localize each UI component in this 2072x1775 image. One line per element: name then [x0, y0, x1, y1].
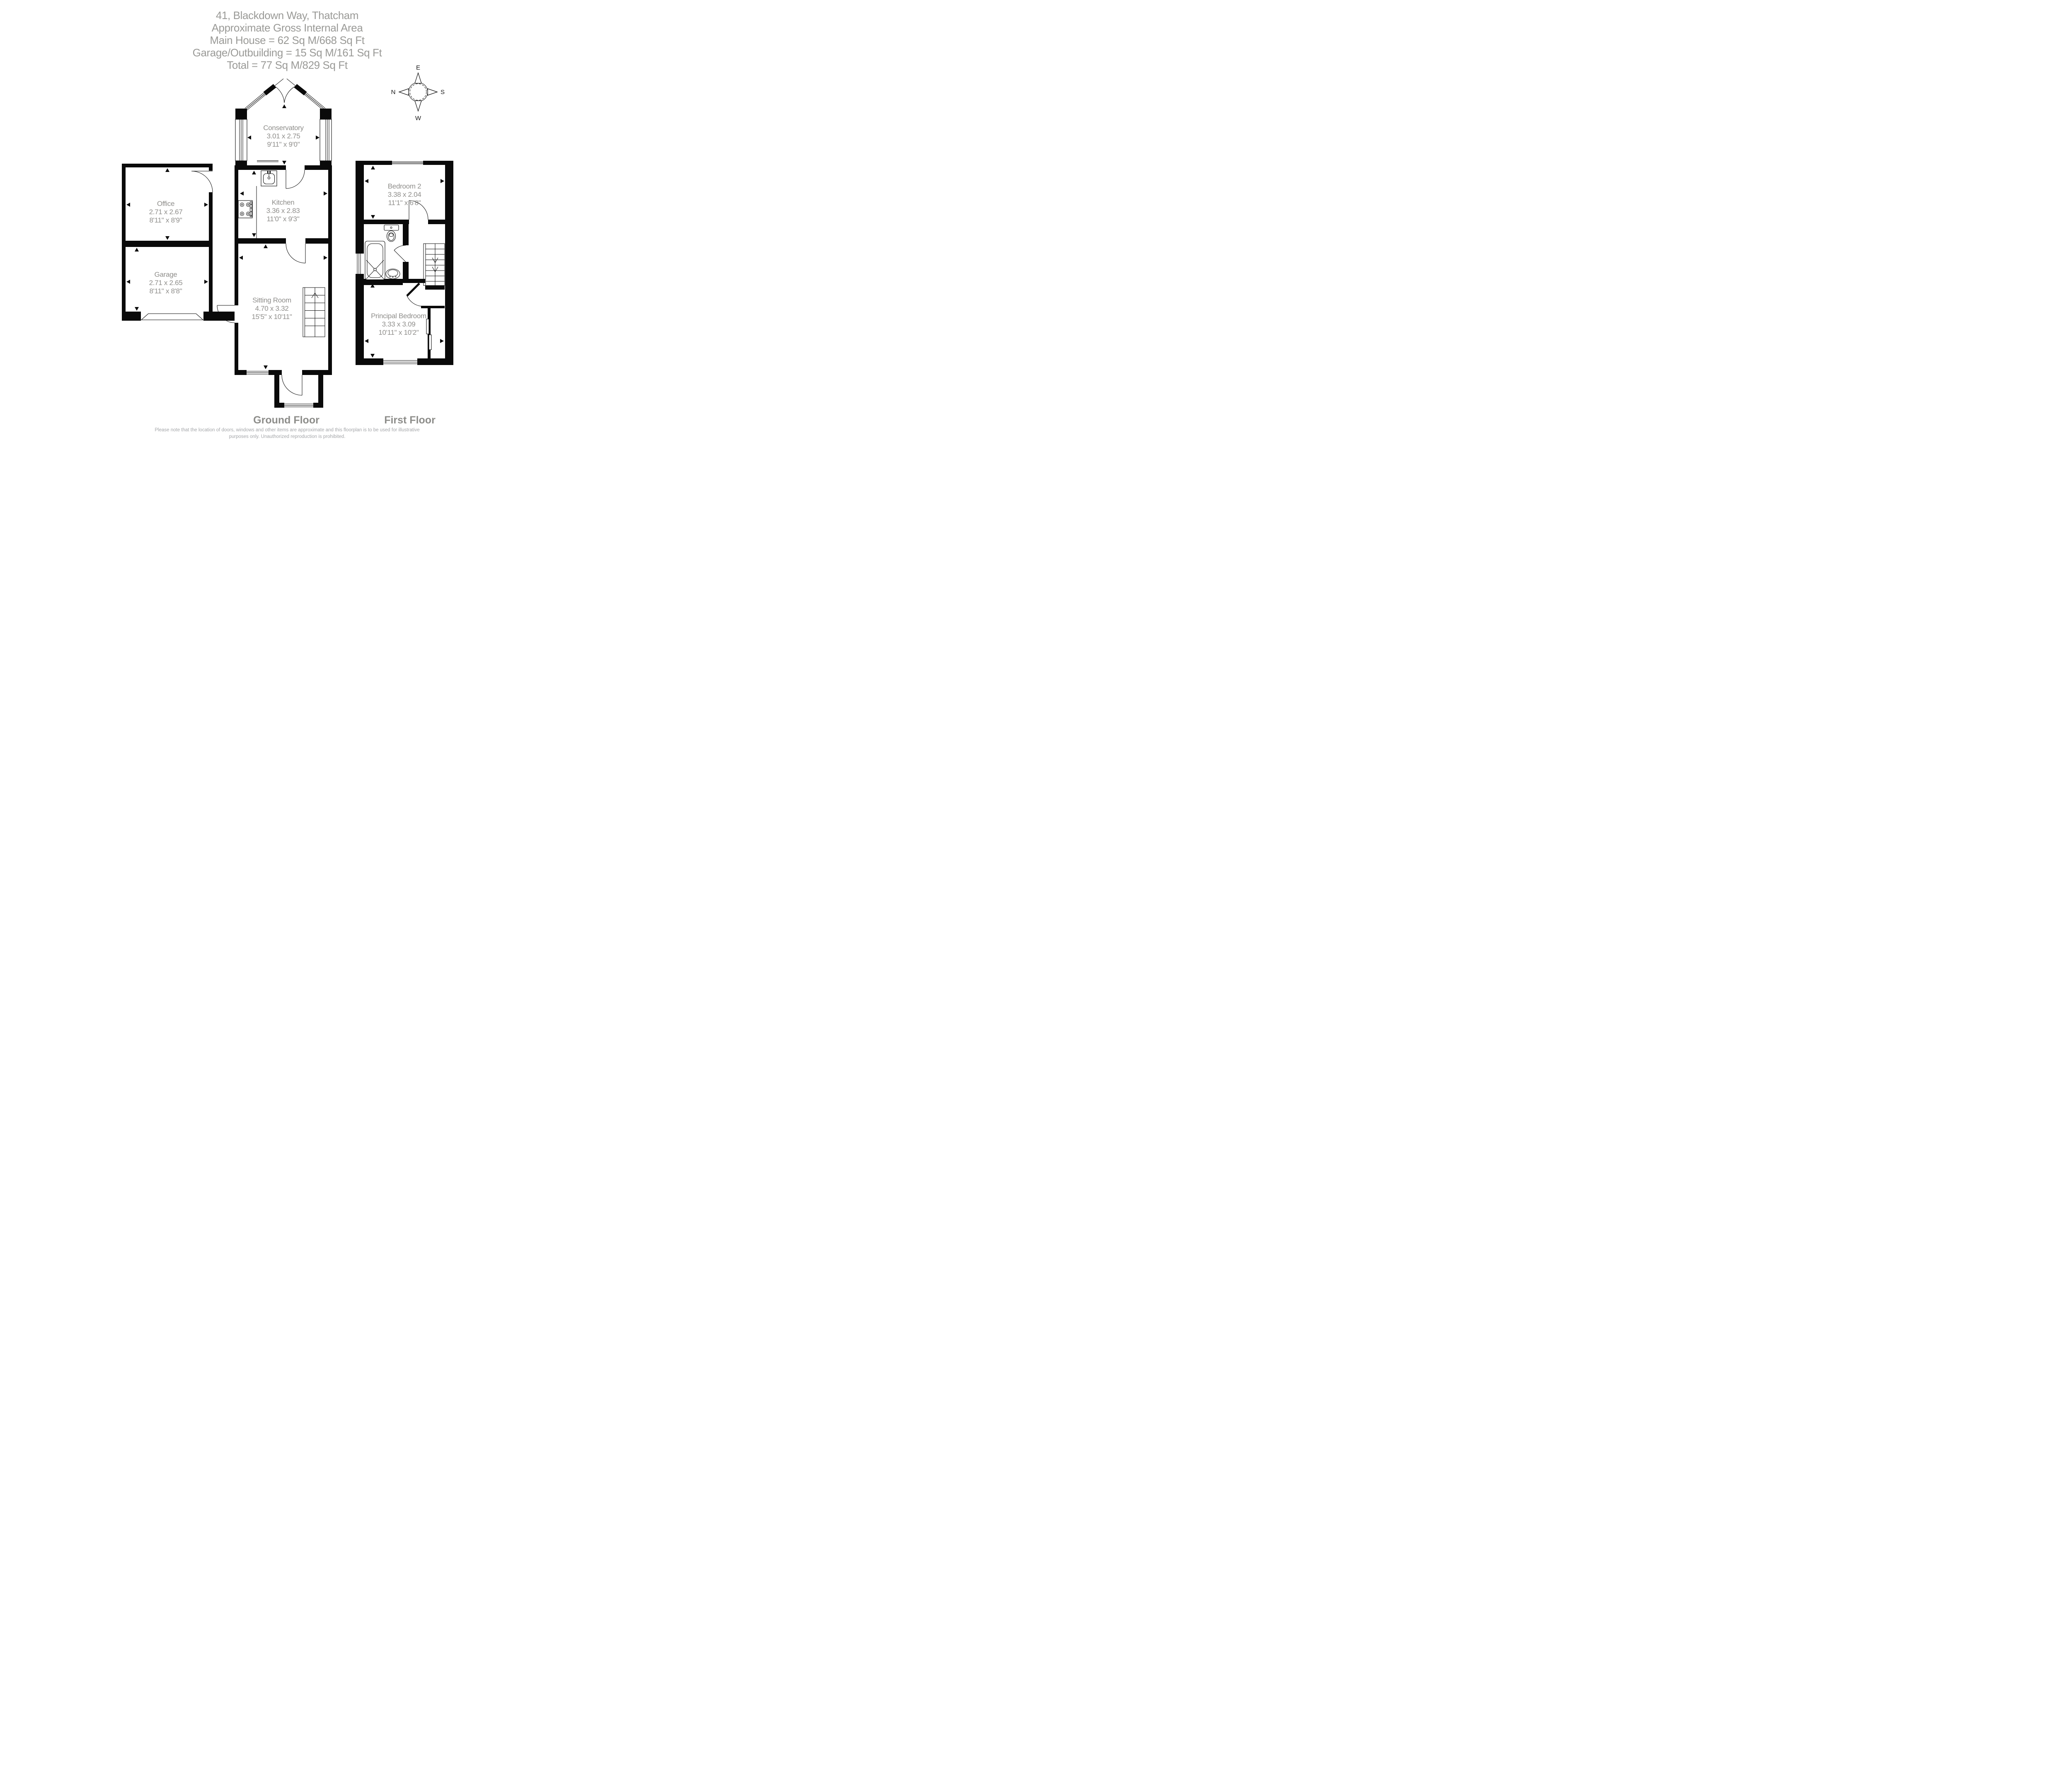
conservatory-window-left — [235, 119, 247, 161]
sitting-room-name: Sitting Room — [252, 296, 291, 304]
bedroom2-name: Bedroom 2 — [388, 182, 421, 190]
compass-point-left — [399, 89, 409, 95]
bedroom2-wall-right — [428, 220, 445, 224]
compass-label-e: E — [416, 64, 420, 71]
understairs-wall — [425, 285, 445, 290]
roof-window-right — [305, 93, 325, 111]
arrow-up-icon — [282, 104, 286, 108]
roof-wall-left — [265, 86, 275, 94]
principal-window — [383, 358, 417, 365]
garage-door-icon — [141, 314, 203, 320]
principal-top-wall-right — [403, 279, 425, 283]
compass-label-w: W — [415, 115, 421, 122]
bedroom2-imperial: 11'1" x 6'8" — [388, 199, 421, 207]
front-door-arc — [282, 375, 302, 395]
conservatory-metric: 3.01 x 2.75 — [267, 132, 300, 140]
kitchen-door-gap — [286, 165, 305, 170]
side-door-gap — [235, 305, 238, 323]
kitchen-imperial: 11'0" x 9'3" — [267, 215, 300, 223]
bathtub-icon — [365, 241, 385, 280]
base-wall-left — [235, 161, 247, 170]
conservatory-window-right — [320, 119, 332, 161]
porch — [274, 375, 323, 408]
apex-door-arc-left — [275, 86, 284, 103]
inner-door-gap — [286, 238, 305, 244]
office-imperial: 8'11" x 8'9" — [150, 216, 182, 224]
compass-point-right — [428, 89, 437, 95]
front-door-gap — [282, 370, 302, 375]
first-floor-label: First Floor — [344, 414, 476, 426]
compass-label-n: N — [391, 89, 396, 96]
disclaimer: Please note that the location of doors, … — [0, 427, 574, 440]
passage-wall — [213, 312, 235, 321]
arrow-right-icon — [316, 135, 320, 140]
ground-floor-label: Ground Floor — [220, 414, 353, 426]
bedroom2-window — [392, 161, 423, 165]
arrow-left-icon — [247, 135, 251, 140]
compass-circle — [409, 82, 428, 102]
floorplan-page: 41, Blackdown Way, Thatcham Approximate … — [0, 0, 574, 444]
bedroom2-metric: 3.38 x 2.04 — [388, 191, 421, 198]
sitting-room-metric: 4.70 x 3.32 — [255, 305, 289, 312]
compass-inner-circle — [410, 84, 426, 100]
roof-wall-right — [295, 86, 305, 94]
porch-window — [284, 403, 313, 408]
bedroom2-wall-left — [364, 220, 409, 224]
roof-window-left — [245, 93, 266, 111]
office-door-gap — [209, 171, 213, 192]
office-metric: 2.71 x 2.67 — [149, 208, 183, 216]
apex-door-arc-right — [284, 86, 295, 103]
bathroom-wall-upper — [403, 224, 409, 245]
basin-icon — [386, 269, 400, 279]
arrow-down-icon — [282, 161, 286, 164]
outbuilding — [122, 164, 213, 321]
compass-label-s: S — [441, 89, 445, 96]
conservatory-imperial: 9'11" x 9'0" — [267, 140, 300, 148]
compass-rose-icon: E N S W — [391, 64, 445, 122]
compass-point-bottom — [415, 101, 421, 111]
principal-bedroom-metric: 3.33 x 3.09 — [382, 320, 416, 328]
cupboard-wall — [421, 306, 445, 308]
garage-imperial: 8'11" x 8'8" — [150, 287, 182, 295]
disclaimer-line-2: purposes only. Unauthorized reproduction… — [0, 434, 574, 440]
office-name: Office — [157, 200, 174, 208]
disclaimer-line-1: Please note that the location of doors, … — [0, 427, 574, 434]
principal-bedroom-name: Principal Bedroom — [371, 312, 426, 320]
conservatory-name: Conservatory — [263, 124, 304, 132]
kitchen-sink-icon — [261, 171, 277, 186]
garage-name: Garage — [155, 271, 177, 278]
corner-wall-right — [320, 109, 332, 120]
base-wall-right — [320, 161, 332, 170]
kitchen-name: Kitchen — [272, 198, 295, 206]
bathroom-wall-lower — [403, 262, 409, 281]
threshold-lines — [257, 161, 278, 162]
garage-metric: 2.71 x 2.65 — [149, 279, 183, 287]
corner-wall-left — [235, 109, 247, 120]
sitting-room-window — [247, 370, 269, 375]
compass-point-top — [415, 73, 421, 83]
floorplan-svg: E N S W — [0, 0, 574, 444]
principal-bedroom-imperial: 10'11" x 10'2" — [378, 329, 419, 336]
kitchen-hob-icon — [238, 201, 252, 218]
sitting-room-imperial: 15'5" x 10'11" — [252, 313, 292, 321]
kitchen-metric: 3.36 x 2.83 — [266, 207, 300, 215]
bathroom-window — [356, 254, 364, 274]
